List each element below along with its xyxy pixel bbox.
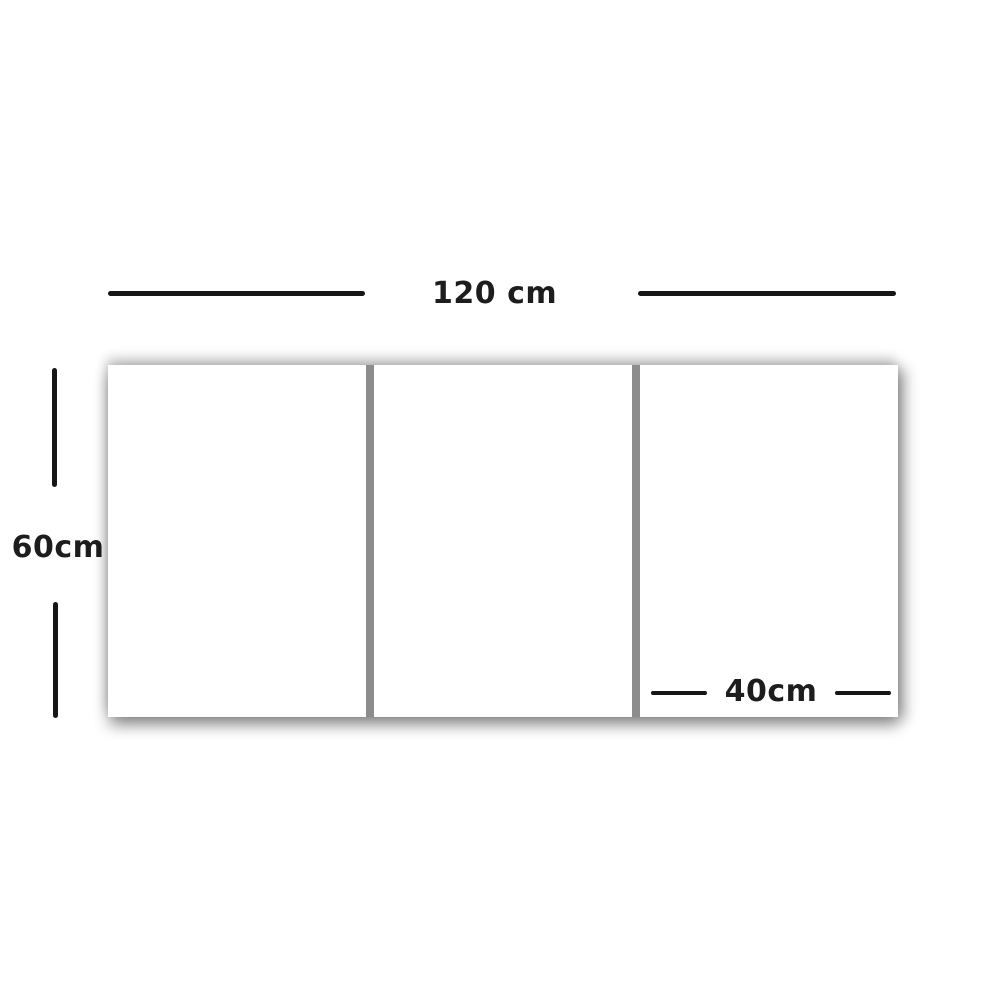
panel-width-dimension-label: 40cm [721,675,821,709]
height-dimension-label: 60cm [10,531,106,565]
total-width-dimension-line-right [638,291,896,296]
canvas-panel-1 [108,365,366,717]
triptych-panels [108,365,898,717]
panel-width-dimension-line-right [835,691,891,695]
dimension-diagram: 120 cm 60cm 40cm [0,0,1000,1000]
total-width-dimension-line-left [108,291,365,296]
total-width-dimension-label: 120 cm [432,277,557,311]
canvas-panel-3 [640,365,898,717]
height-dimension-line-top [52,368,57,487]
height-dimension-line-bottom [53,602,58,718]
panel-width-dimension-line-left [651,691,707,695]
canvas-panel-2 [374,365,632,717]
